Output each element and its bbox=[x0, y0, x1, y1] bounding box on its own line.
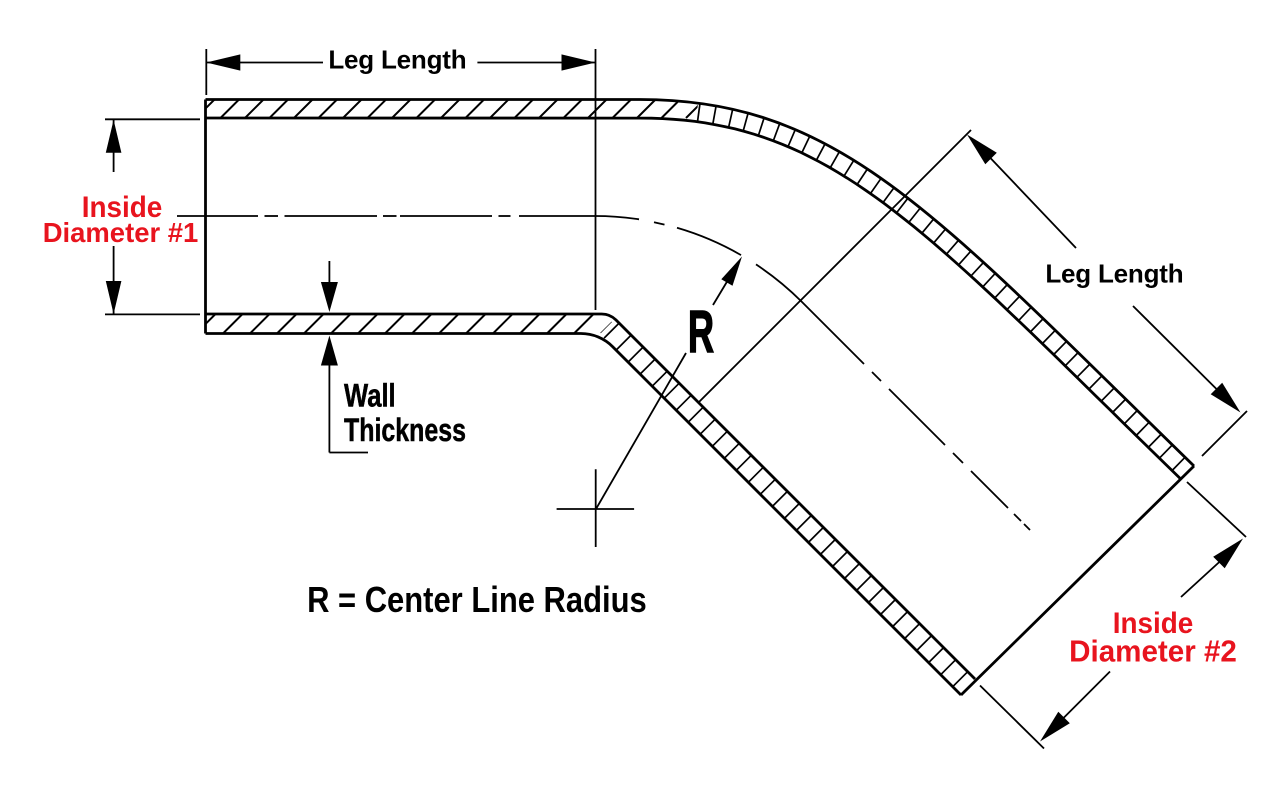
svg-text:Leg Length: Leg Length bbox=[328, 44, 466, 74]
svg-text:Thickness: Thickness bbox=[344, 413, 466, 449]
svg-text:Diameter #2: Diameter #2 bbox=[1069, 635, 1237, 669]
svg-text:Wall: Wall bbox=[344, 379, 396, 414]
svg-text:R = Center Line Radius: R = Center Line Radius bbox=[307, 581, 647, 621]
svg-text:R: R bbox=[688, 300, 714, 365]
svg-text:Leg Length: Leg Length bbox=[1045, 259, 1183, 289]
svg-text:Diameter #1: Diameter #1 bbox=[43, 217, 199, 248]
